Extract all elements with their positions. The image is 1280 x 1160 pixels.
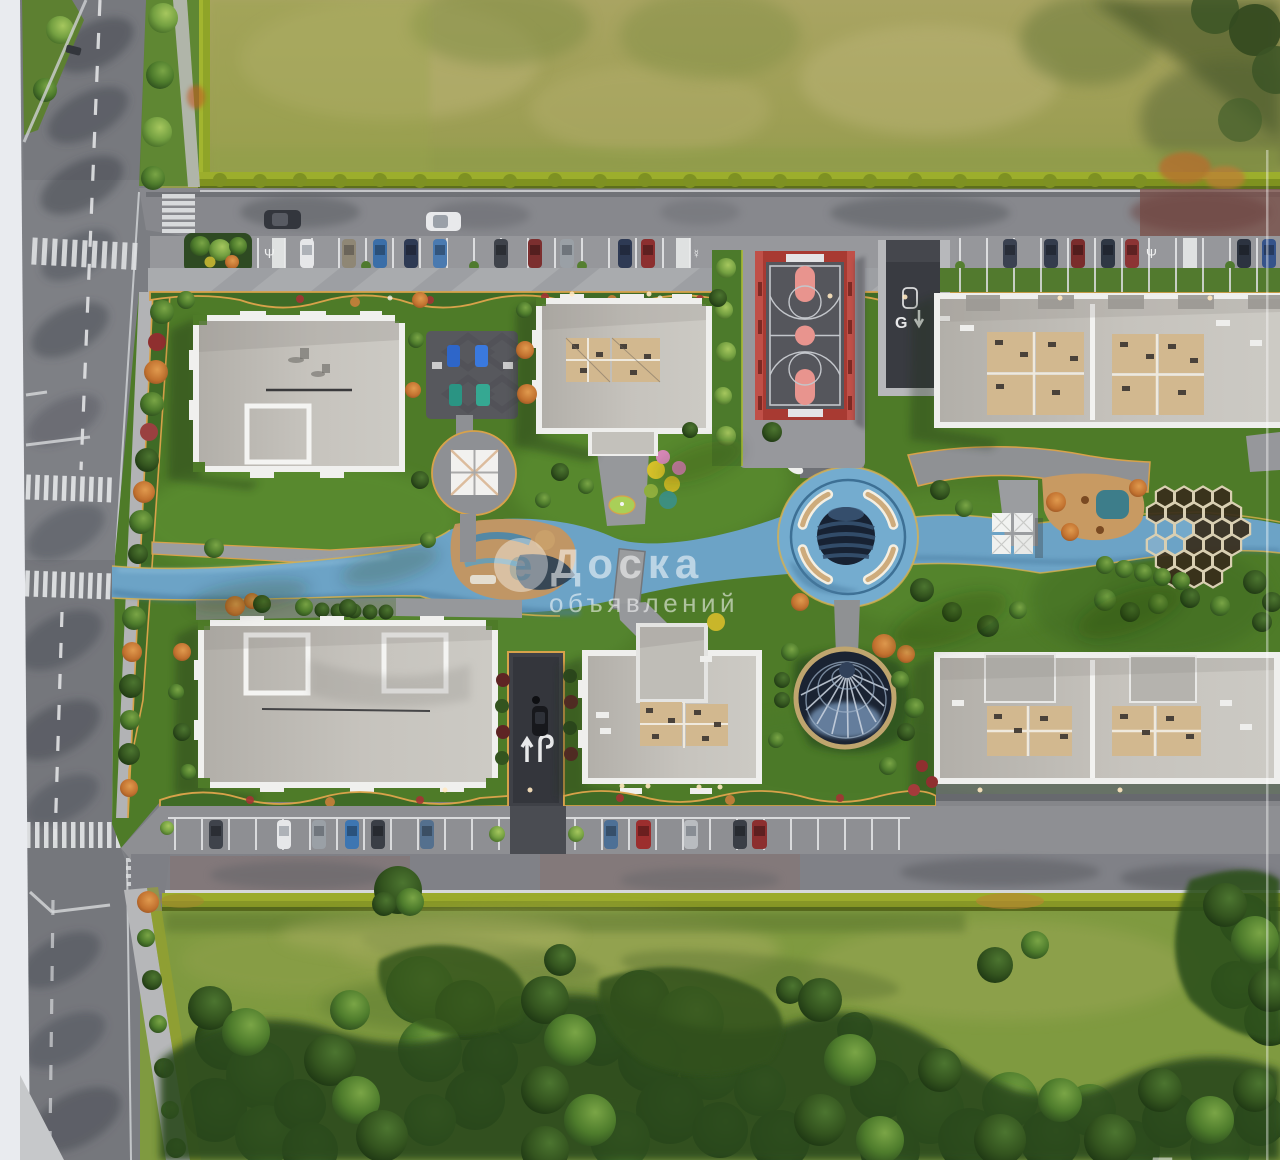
svg-text:Ψ: Ψ bbox=[264, 246, 275, 261]
svg-text:объявлений: объявлений bbox=[549, 588, 739, 618]
svg-text:e: e bbox=[508, 541, 532, 590]
svg-text:Ψ: Ψ bbox=[1146, 246, 1157, 261]
svg-text:G: G bbox=[895, 315, 907, 332]
svg-text:☿: ☿ bbox=[692, 247, 701, 261]
svg-text:Доска: Доска bbox=[1142, 1147, 1280, 1160]
svg-text:Доска: Доска bbox=[551, 540, 704, 587]
